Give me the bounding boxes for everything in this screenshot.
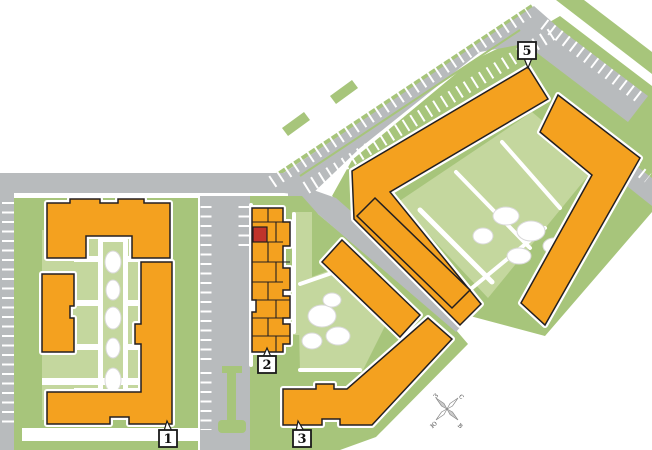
badge-3-label: 3: [297, 432, 306, 447]
green-strip-left: [14, 198, 22, 450]
compass-rose: з с ю в: [428, 391, 467, 431]
badge-5-label: 5: [522, 44, 531, 59]
building-2[interactable]: [252, 208, 290, 352]
building-1-west-wing[interactable]: [42, 274, 74, 352]
compass-north: с: [457, 392, 467, 402]
compass-west: з: [431, 391, 440, 401]
compass-east: в: [456, 421, 466, 431]
badge-2-label: 2: [262, 358, 271, 373]
playground-1: [105, 251, 121, 273]
selected-section[interactable]: [253, 227, 267, 242]
site-plan: 1 2 3 5 з с ю в: [0, 0, 652, 450]
playground-3: [308, 305, 336, 327]
playground-5: [493, 207, 519, 225]
site-plan-map: 1 2 3 5 з с ю в: [0, 0, 652, 450]
compass-south: ю: [428, 419, 439, 430]
badge-1-label: 1: [163, 432, 172, 447]
